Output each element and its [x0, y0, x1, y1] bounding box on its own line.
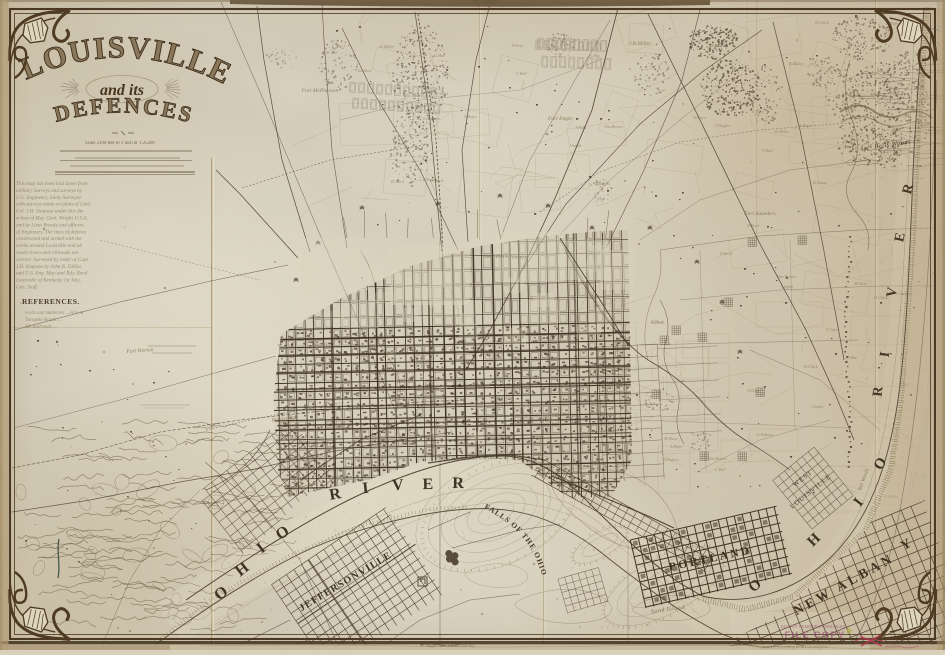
- svg-text:P.Grey: P.Grey: [511, 43, 523, 48]
- svg-text:S.Oldham: S.Oldham: [423, 116, 440, 121]
- svg-text:M.Shaw: M.Shaw: [853, 281, 868, 286]
- svg-text:Jas.Ross: Jas.Ross: [357, 68, 372, 73]
- svg-text:A.Pope: A.Pope: [798, 123, 811, 128]
- svg-text:J.Smith: J.Smith: [569, 143, 581, 148]
- svg-text:N.Reed: N.Reed: [746, 223, 760, 228]
- svg-text:Wm.Brown: Wm.Brown: [777, 274, 796, 279]
- svg-text:B.Young: B.Young: [813, 180, 827, 185]
- svg-text:N.Reed: N.Reed: [650, 319, 664, 324]
- svg-text:E.Tyler: E.Tyler: [825, 327, 839, 332]
- svg-text:W.Kaye: W.Kaye: [464, 114, 477, 119]
- svg-text:H.Clark: H.Clark: [803, 364, 818, 369]
- svg-text:F.Hall: F.Hall: [761, 148, 773, 153]
- svg-text:T.Hughes: T.Hughes: [663, 457, 679, 462]
- svg-text:T.Hughes: T.Hughes: [715, 123, 731, 128]
- svg-text:C.Bell: C.Bell: [715, 467, 726, 472]
- svg-text:A.Pope: A.Pope: [669, 444, 682, 449]
- svg-text:R.Miller: R.Miller: [788, 61, 803, 66]
- svg-text:S.Oldham: S.Oldham: [756, 432, 773, 437]
- svg-text:M.Shaw: M.Shaw: [663, 436, 678, 441]
- svg-text:Wm.Brown: Wm.Brown: [604, 124, 623, 129]
- svg-text:R.Miller: R.Miller: [379, 44, 394, 49]
- svg-text:J.Smith: J.Smith: [811, 404, 823, 409]
- svg-text:H.Clark: H.Clark: [814, 20, 829, 25]
- svg-text:G.Hite: G.Hite: [589, 53, 600, 58]
- svg-text:R.Miller: R.Miller: [774, 129, 789, 134]
- svg-text:N.Reed: N.Reed: [719, 251, 733, 256]
- svg-text:C.Bell: C.Bell: [516, 71, 527, 76]
- svg-text:Wm.Brown: Wm.Brown: [708, 456, 727, 461]
